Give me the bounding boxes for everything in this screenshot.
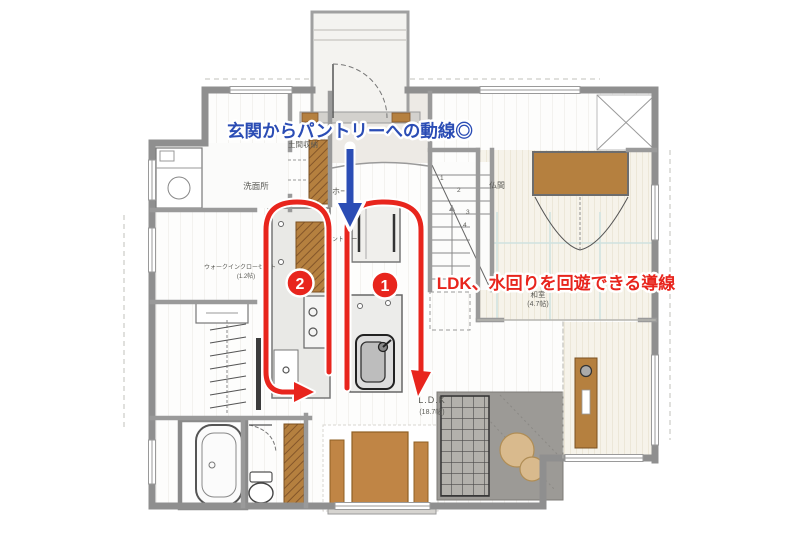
floorplan-svg: 1 2 3 4 [0, 0, 800, 534]
bathroom [180, 420, 246, 508]
ldk-label: L.D.K [418, 395, 446, 405]
dining-set [323, 425, 438, 514]
washroom-vanity [156, 148, 202, 208]
sofa [441, 396, 489, 496]
blue-note-text: 玄関からパントリーへの動線◎ [227, 121, 473, 141]
kitchen-counter [272, 208, 330, 398]
stair-step-label: 1 [440, 175, 444, 182]
stair-step-label: 3 [466, 209, 470, 216]
washitsu-size-label: (4.7帖) [527, 299, 548, 308]
stair-step-label: 2 [457, 187, 461, 194]
bathtub [196, 425, 242, 505]
marker-2-number: 2 [296, 276, 305, 293]
marker-1-number: 1 [381, 278, 390, 295]
bench-right [414, 442, 428, 504]
stair-step-label: 4 [463, 222, 467, 229]
toilet [249, 483, 273, 503]
marker-1-badge: 1 [372, 272, 399, 299]
entrance-porch [300, 12, 420, 123]
red-note-text: LDK、水回りを回遊できる導線 [437, 273, 676, 293]
void-box [597, 95, 655, 150]
kitchen-island [350, 295, 402, 392]
wic-size-label: (1.2帖) [237, 272, 255, 280]
floorplan-page: 1 2 3 4 [0, 0, 800, 534]
washroom-label: 洗面所 [243, 181, 269, 191]
butsuma-label: 仏間 [489, 181, 505, 190]
storage-cabinet [284, 424, 304, 504]
ldk-size-label: (18.7帖) [419, 407, 444, 416]
marker-2-badge: 2 [287, 270, 314, 297]
closet-mirror [256, 338, 261, 410]
stool [581, 366, 592, 377]
dining-table [352, 432, 408, 510]
study-desk [575, 358, 597, 448]
bench-left [330, 440, 344, 504]
